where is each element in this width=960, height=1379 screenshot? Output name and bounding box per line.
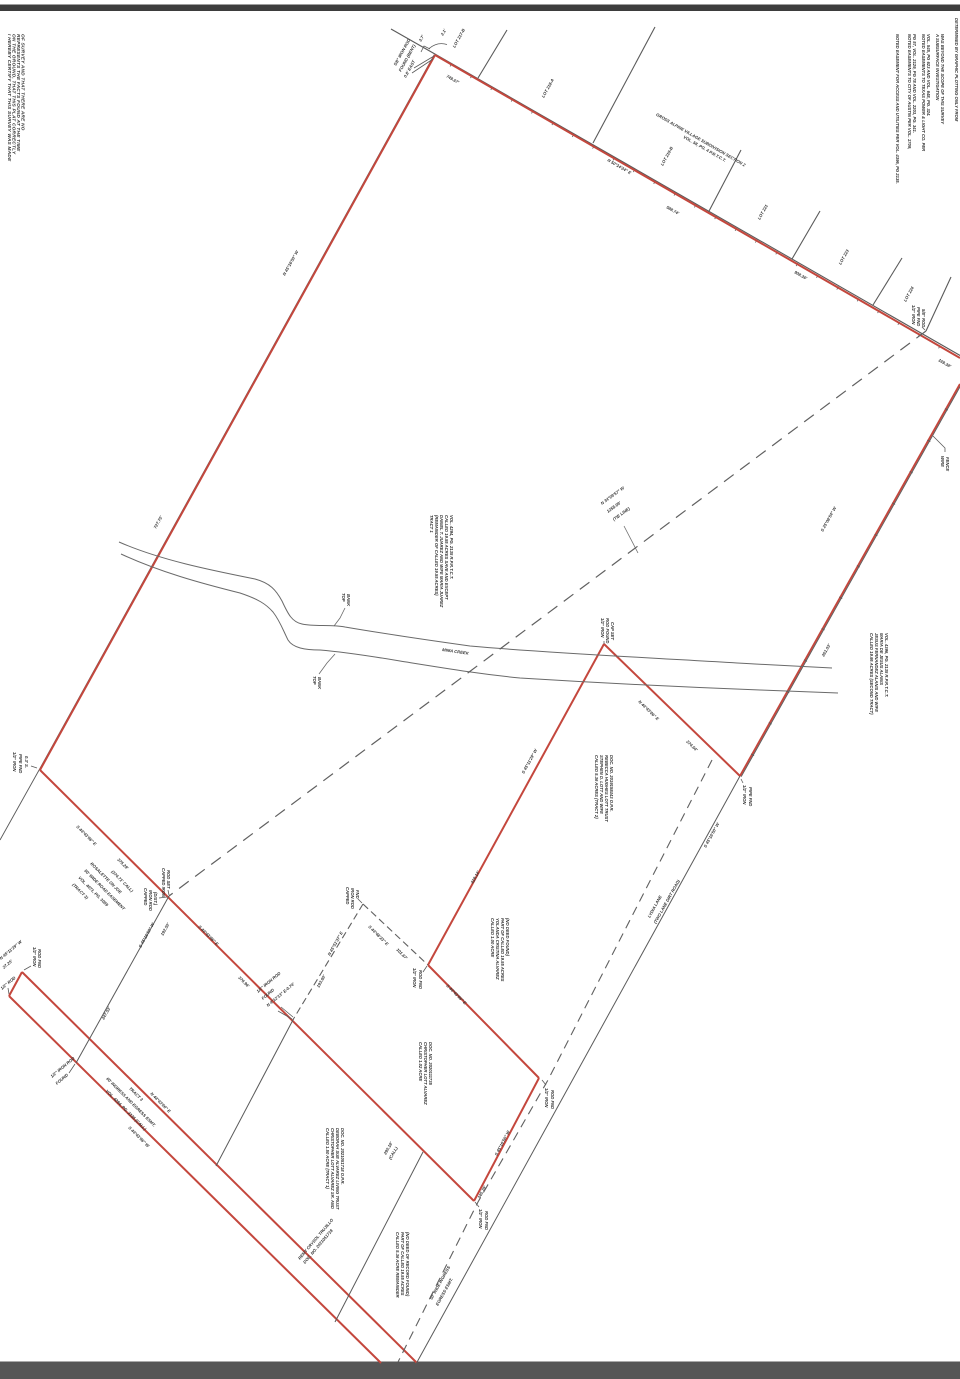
svg-text:1/2" IRON: 1/2" IRON [742, 785, 747, 805]
svg-text:PART OF CALLED 19.55 ACRES: PART OF CALLED 19.55 ACRES [500, 918, 505, 982]
svg-text:TRACT 1: TRACT 1 [429, 515, 434, 533]
svg-text:(NO DEED FOUND): (NO DEED FOUND) [505, 918, 510, 957]
svg-text:CAPPED: CAPPED [345, 887, 350, 904]
svg-text:CAPPED: CAPPED [143, 888, 148, 905]
svg-text:CAPPED IRON: CAPPED IRON [161, 868, 166, 898]
svg-text:(NO DEED OF RECORD FOUND): (NO DEED OF RECORD FOUND) [405, 1232, 410, 1297]
svg-text:VOL. 545, PG 623 AND VOL. 648,: VOL. 545, PG 623 AND VOL. 648, PG. 324. [926, 34, 931, 116]
svg-text:CHRISTOPHER LOTT ALVAREZ SR. A: CHRISTOPHER LOTT ALVAREZ SR. AND [330, 1128, 335, 1209]
svg-text:STEPHEN D. LOTT AND WIFE: STEPHEN D. LOTT AND WIFE [599, 755, 604, 814]
svg-text:FND: FND [355, 890, 360, 899]
svg-text:PIPE FND: PIPE FND [916, 307, 921, 326]
svg-text:CALLED 1.00 ACRE: CALLED 1.00 ACRE [490, 918, 495, 957]
svg-text:IRON ROD: IRON ROD [148, 890, 153, 911]
svg-text:NOTED EASEMENT FOR ACCESS AND: NOTED EASEMENT FOR ACCESS AND UTILITIES … [895, 34, 900, 184]
svg-text:CALLED 19.55 ACRES SAVE AND EX: CALLED 19.55 ACRES SAVE AND EXCEPT [444, 515, 449, 600]
svg-text:PIPE FND: PIPE FND [748, 787, 753, 806]
svg-text:PART OF CALLED 19.55 ACRES: PART OF CALLED 19.55 ACRES [400, 1232, 405, 1296]
svg-text:CHRISTOPHER LOTT ALVAREZ: CHRISTOPHER LOTT ALVAREZ [423, 1042, 428, 1105]
svg-text:BANK: BANK [317, 677, 322, 690]
svg-text:ROD FND: ROD FND [550, 1090, 555, 1109]
svg-text:ROD FND: ROD FND [37, 949, 42, 968]
svg-text:YOLANDA CRISTINA ALVAREZ: YOLANDA CRISTINA ALVAREZ [495, 918, 500, 980]
svg-text:ROD FND: ROD FND [418, 970, 423, 989]
svg-text:(DIST.): (DIST.) [153, 892, 158, 906]
svg-text:0.3' S.: 0.3' S. [24, 756, 29, 768]
svg-text:DOC. NO. 2019158443 O.P.R.: DOC. NO. 2019158443 O.P.R. [609, 755, 614, 812]
svg-text:CALLED 1.50 ACRE (TRACT 1): CALLED 1.50 ACRE (TRACT 1) [325, 1128, 330, 1189]
svg-text:A SUBSURFACE INVESTIGATION: A SUBSURFACE INVESTIGATION [935, 33, 940, 101]
svg-text:FENCE: FENCE [945, 457, 950, 471]
svg-text:VOL. 4396, PG. 2135 R.P.R.T.C.: VOL. 4396, PG. 2135 R.P.R.T.C.T. [884, 633, 889, 697]
svg-text:5/8" ROD: 5/8" ROD [921, 309, 926, 327]
svg-text:DEBORAH SUE ALVAREZ LIVING TRU: DEBORAH SUE ALVAREZ LIVING TRUST [335, 1128, 340, 1210]
svg-text:1/2" IRON: 1/2" IRON [911, 305, 916, 325]
svg-text:JESUS FERNANDEZ ALANIS AND WIF: JESUS FERNANDEZ ALANIS AND WIFE [874, 633, 879, 712]
svg-text:VOL. 4294, PG. 2135 R.P.R.T.C.: VOL. 4294, PG. 2135 R.P.R.T.C.T. [449, 515, 454, 579]
svg-text:DANIEL T. JUAREZ AND WIFE MARI: DANIEL T. JUAREZ AND WIFE MARIA JUAREZ [439, 515, 444, 608]
svg-text:1/2" IRON: 1/2" IRON [32, 947, 37, 967]
svg-text:(REMAINDER OF CALLED 19.55 ACR: (REMAINDER OF CALLED 19.55 ACRES) [434, 515, 439, 596]
svg-text:CALLED 5.36 ACRES (TRACT 2): CALLED 5.36 ACRES (TRACT 2) [594, 755, 599, 819]
svg-text:CALLED 5.36 ACRE REMAINDER: CALLED 5.36 ACRE REMAINDER [395, 1232, 400, 1298]
svg-text:TOP: TOP [341, 593, 346, 602]
svg-text:CALLED 1.02 ACRE: CALLED 1.02 ACRE [418, 1042, 423, 1081]
svg-text:ROD SET: ROD SET [166, 870, 171, 889]
svg-text:DETERMINED BY GRAPHIC PLOTTING: DETERMINED BY GRAPHIC PLOTTING ONLY FROM [954, 18, 959, 122]
svg-text:DOC. NO. 2020111735: DOC. NO. 2020111735 [428, 1042, 433, 1086]
svg-text:ROD FOUND: ROD FOUND [605, 618, 610, 643]
svg-text:WAS BEYOND THE SCOPE OF THIS S: WAS BEYOND THE SCOPE OF THIS SURVEY [940, 34, 945, 125]
svg-text:CAP SET: CAP SET [610, 622, 615, 640]
svg-text:TOP: TOP [312, 676, 317, 685]
svg-text:1/2" IRON: 1/2" IRON [412, 968, 417, 988]
svg-text:PG 57, VOL. 2129, PG 78 AND VO: PG 57, VOL. 2129, PG 78 AND VOL. 2203, P… [912, 34, 917, 133]
svg-text:WIRE: WIRE [940, 456, 945, 467]
svg-text:DOC. NO. 2021051718 O.P.R.: DOC. NO. 2021051718 O.P.R. [340, 1128, 345, 1185]
svg-text:1/2" IRON: 1/2" IRON [544, 1088, 549, 1108]
svg-text:OF SURVEY AND THAT THERE ARE N: OF SURVEY AND THAT THERE ARE NO [20, 34, 26, 131]
svg-text:ROD FND: ROD FND [484, 1211, 489, 1230]
svg-text:REBECCA HUGHES LOTT TRUST: REBECCA HUGHES LOTT TRUST [604, 755, 609, 822]
svg-text:1/2" IRON: 1/2" IRON [12, 752, 17, 772]
svg-text:CALLED 19.95 ACRES (SECOND TRA: CALLED 19.95 ACRES (SECOND TRACT) [869, 633, 874, 715]
svg-text:1/2" IRON: 1/2" IRON [478, 1209, 483, 1229]
svg-text:1/2" IRON: 1/2" IRON [600, 618, 605, 638]
svg-text:MARIA DE JESUS ALANIS: MARIA DE JESUS ALANIS [879, 633, 884, 685]
svg-text:NOTED EASEMENTS TO CITY OF AUS: NOTED EASEMENTS TO CITY OF AUSTIN PER VO… [907, 34, 912, 149]
svg-text:IRON ROD: IRON ROD [350, 888, 355, 909]
svg-text:PIPE FND: PIPE FND [18, 754, 23, 773]
svg-text:BANK: BANK [346, 594, 351, 607]
svg-text:NOTED EASEMENTS TO TEXAS POWER: NOTED EASEMENTS TO TEXAS POWER & LIGHT C… [921, 34, 926, 151]
